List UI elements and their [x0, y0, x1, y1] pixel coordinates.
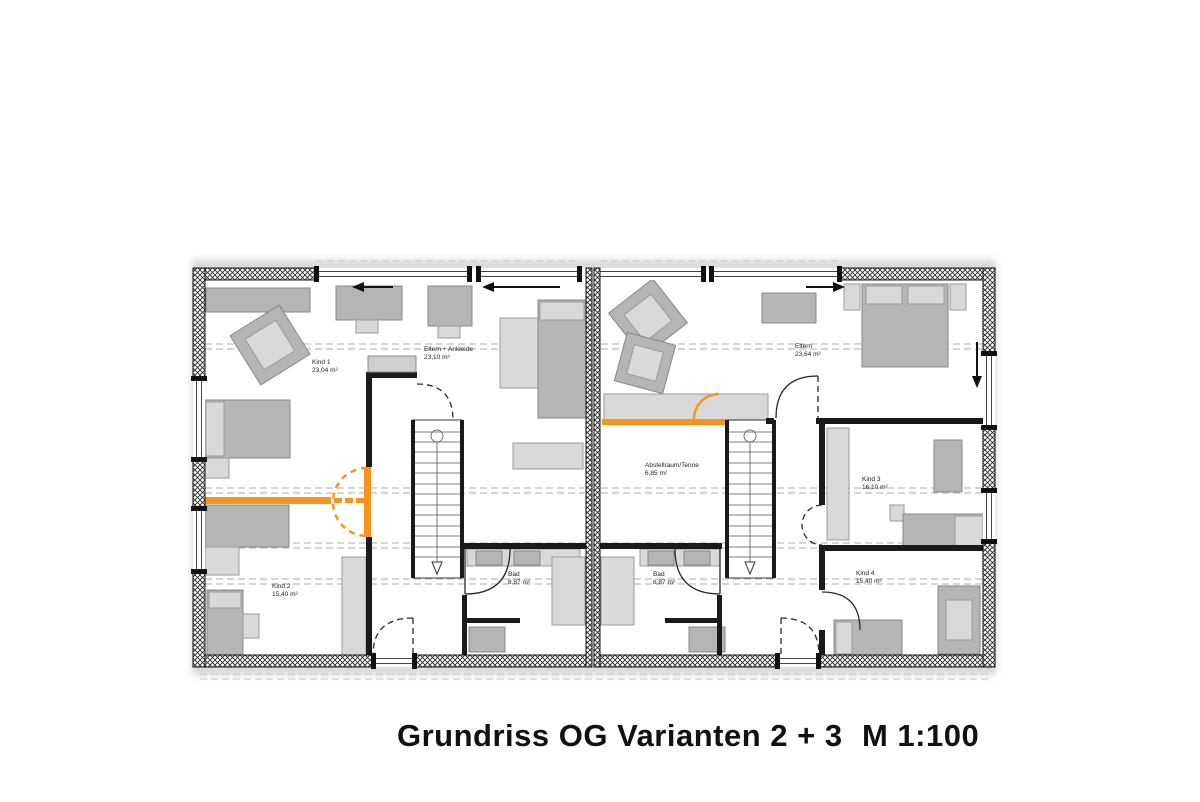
bedside-table: [205, 458, 229, 478]
desk-chair: [946, 600, 972, 640]
bed-pillow: [540, 302, 584, 320]
shower: [601, 557, 634, 625]
room-label-kind1: Kind 1: [312, 359, 331, 366]
bed-pillow: [836, 622, 852, 654]
window: [981, 351, 997, 430]
staircase-right: [727, 420, 774, 578]
room-area-kind1: 23,04 m²: [312, 367, 338, 374]
window: [314, 266, 472, 282]
room-area-abstellraum: 6,85 m²: [645, 470, 668, 477]
bed-pillow: [955, 516, 983, 546]
wardrobe: [500, 318, 540, 388]
desk-chair: [438, 326, 460, 338]
room-label-eltern: Eltern: [795, 343, 812, 350]
room-label-kind4: Kind 4: [856, 570, 875, 577]
window: [981, 488, 997, 544]
room-area-eltern: 23,64 m²: [795, 351, 821, 358]
highlight-wall: [364, 467, 371, 537]
bed-pillow: [206, 402, 224, 456]
drawing-scale: M 1:100: [862, 718, 979, 753]
room-area-bad-links: 8,87 m²: [508, 579, 531, 586]
bed-pillow: [866, 286, 902, 304]
dresser: [762, 293, 816, 323]
room-area-kind2: 15,40 m²: [272, 591, 298, 598]
bed-pillow: [908, 286, 944, 304]
desk: [934, 440, 962, 492]
room-label-abstellraum: Abstellraum/Tenne: [645, 462, 699, 469]
room-area-kind4: 15,40 m²: [856, 578, 882, 585]
drawing-title: Grundriss OG Varianten 2 + 3: [397, 718, 843, 753]
closet-band: [604, 394, 768, 420]
room-area-bad-rechts: 8,87 m²: [653, 579, 676, 586]
floor-plan-drawing: Kind 1 23,04 m² Eltern + Ankleide 23,10 …: [0, 0, 1200, 802]
washbasin: [514, 551, 540, 565]
window: [709, 266, 842, 282]
window: [600, 266, 706, 282]
desk-chair: [356, 320, 378, 333]
washbasin: [476, 551, 502, 565]
dresser: [513, 443, 583, 469]
room-area-kind3: 16,10 m²: [862, 484, 888, 491]
bed-pillow: [209, 592, 241, 608]
nightstand: [950, 284, 966, 310]
room-label-kind3: Kind 3: [862, 476, 881, 483]
nightstand: [844, 284, 860, 310]
room-label-kind2: Kind 2: [272, 583, 291, 590]
shower: [552, 557, 585, 625]
terrace-door-opening: [775, 653, 821, 669]
bedside-table: [205, 547, 239, 575]
desk: [428, 286, 472, 326]
floor-plan-sheet: Kind 1 23,04 m² Eltern + Ankleide 23,10 …: [0, 0, 1200, 802]
wardrobe: [827, 428, 849, 540]
washbasin: [648, 551, 674, 565]
highlight-wall: [602, 419, 727, 425]
window: [476, 266, 582, 282]
room-area-eltern-ankleide: 23,10 m²: [424, 354, 450, 361]
room-label-bad-links: Bad: [508, 571, 520, 578]
washbasin: [684, 551, 710, 565]
room-label-eltern-ankleide: Eltern + Ankleide: [424, 346, 473, 353]
window: [191, 376, 207, 462]
bedside-table: [890, 505, 904, 521]
staircase-left: [413, 420, 462, 578]
wardrobe: [342, 557, 366, 657]
terrace-door-opening: [371, 653, 417, 669]
highlight-wall: [203, 497, 331, 504]
sideboard: [206, 288, 310, 312]
window: [191, 506, 207, 574]
toilet: [469, 627, 505, 652]
bedside-table: [243, 614, 259, 638]
room-label-bad-rechts: Bad: [653, 571, 665, 578]
desk: [336, 286, 402, 320]
bed: [205, 505, 289, 547]
